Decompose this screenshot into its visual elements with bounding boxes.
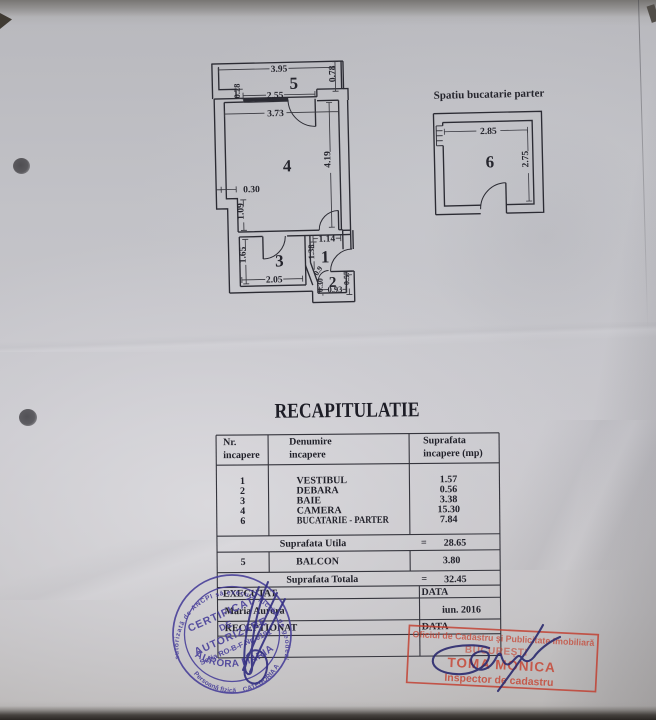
svg-text:3.95: 3.95 bbox=[271, 65, 288, 75]
svg-text:7.84: 7.84 bbox=[440, 514, 458, 525]
svg-text:1.65: 1.65 bbox=[238, 246, 248, 263]
svg-text:=: = bbox=[421, 537, 427, 548]
svg-text:Suprafata Totala: Suprafata Totala bbox=[286, 574, 358, 586]
svg-text:2.05: 2.05 bbox=[266, 275, 283, 285]
svg-text:iun. 2016: iun. 2016 bbox=[442, 604, 481, 615]
svg-text:1.14: 1.14 bbox=[318, 234, 335, 244]
svg-text:DATA: DATA bbox=[421, 587, 449, 598]
svg-text:Spatiu bucatarie parter: Spatiu bucatarie parter bbox=[434, 87, 545, 102]
svg-text:2.55: 2.55 bbox=[267, 91, 284, 101]
svg-text:RECAPITULATIE: RECAPITULATIE bbox=[274, 397, 419, 423]
svg-text:0.28: 0.28 bbox=[232, 83, 242, 98]
svg-text:32.45: 32.45 bbox=[444, 574, 467, 585]
svg-text:5: 5 bbox=[241, 557, 246, 568]
svg-text:BUCATARIE - PARTER: BUCATARIE - PARTER bbox=[297, 515, 390, 527]
svg-text:BALCON: BALCON bbox=[296, 556, 340, 567]
svg-text:Suprafata Utila: Suprafata Utila bbox=[280, 538, 346, 550]
svg-text:1.38: 1.38 bbox=[306, 244, 316, 259]
svg-text:4.19: 4.19 bbox=[323, 151, 333, 168]
svg-text:Denumire: Denumire bbox=[289, 436, 332, 447]
svg-text:6: 6 bbox=[485, 152, 494, 171]
svg-text:3: 3 bbox=[275, 251, 284, 270]
svg-text:1: 1 bbox=[321, 247, 330, 266]
svg-text:5: 5 bbox=[289, 74, 298, 93]
svg-text:Oficiul de Cadastru şi Publici: Oficiul de Cadastru şi Publicitate Imobi… bbox=[412, 629, 595, 648]
svg-text:0.57: 0.57 bbox=[342, 271, 351, 285]
svg-text:Nr.: Nr. bbox=[223, 437, 237, 448]
svg-text:0.30: 0.30 bbox=[243, 185, 260, 195]
svg-text:incapere: incapere bbox=[223, 450, 260, 461]
svg-text:6: 6 bbox=[240, 516, 245, 527]
svg-text:0.30: 0.30 bbox=[316, 278, 325, 292]
svg-text:1.09: 1.09 bbox=[236, 203, 246, 220]
svg-text:incapere (mp): incapere (mp) bbox=[423, 448, 483, 460]
svg-text:2.85: 2.85 bbox=[480, 127, 497, 137]
svg-text:=: = bbox=[421, 574, 427, 585]
svg-text:3.73: 3.73 bbox=[267, 109, 284, 119]
svg-text:3.80: 3.80 bbox=[443, 555, 461, 566]
svg-text:28.65: 28.65 bbox=[444, 538, 467, 549]
svg-text:4: 4 bbox=[283, 156, 292, 175]
svg-text:Suprafata: Suprafata bbox=[423, 435, 466, 446]
svg-text:2: 2 bbox=[329, 275, 337, 291]
svg-text:2.75: 2.75 bbox=[521, 150, 531, 167]
svg-text:0.78: 0.78 bbox=[328, 65, 338, 82]
svg-text:incapere: incapere bbox=[289, 449, 326, 460]
